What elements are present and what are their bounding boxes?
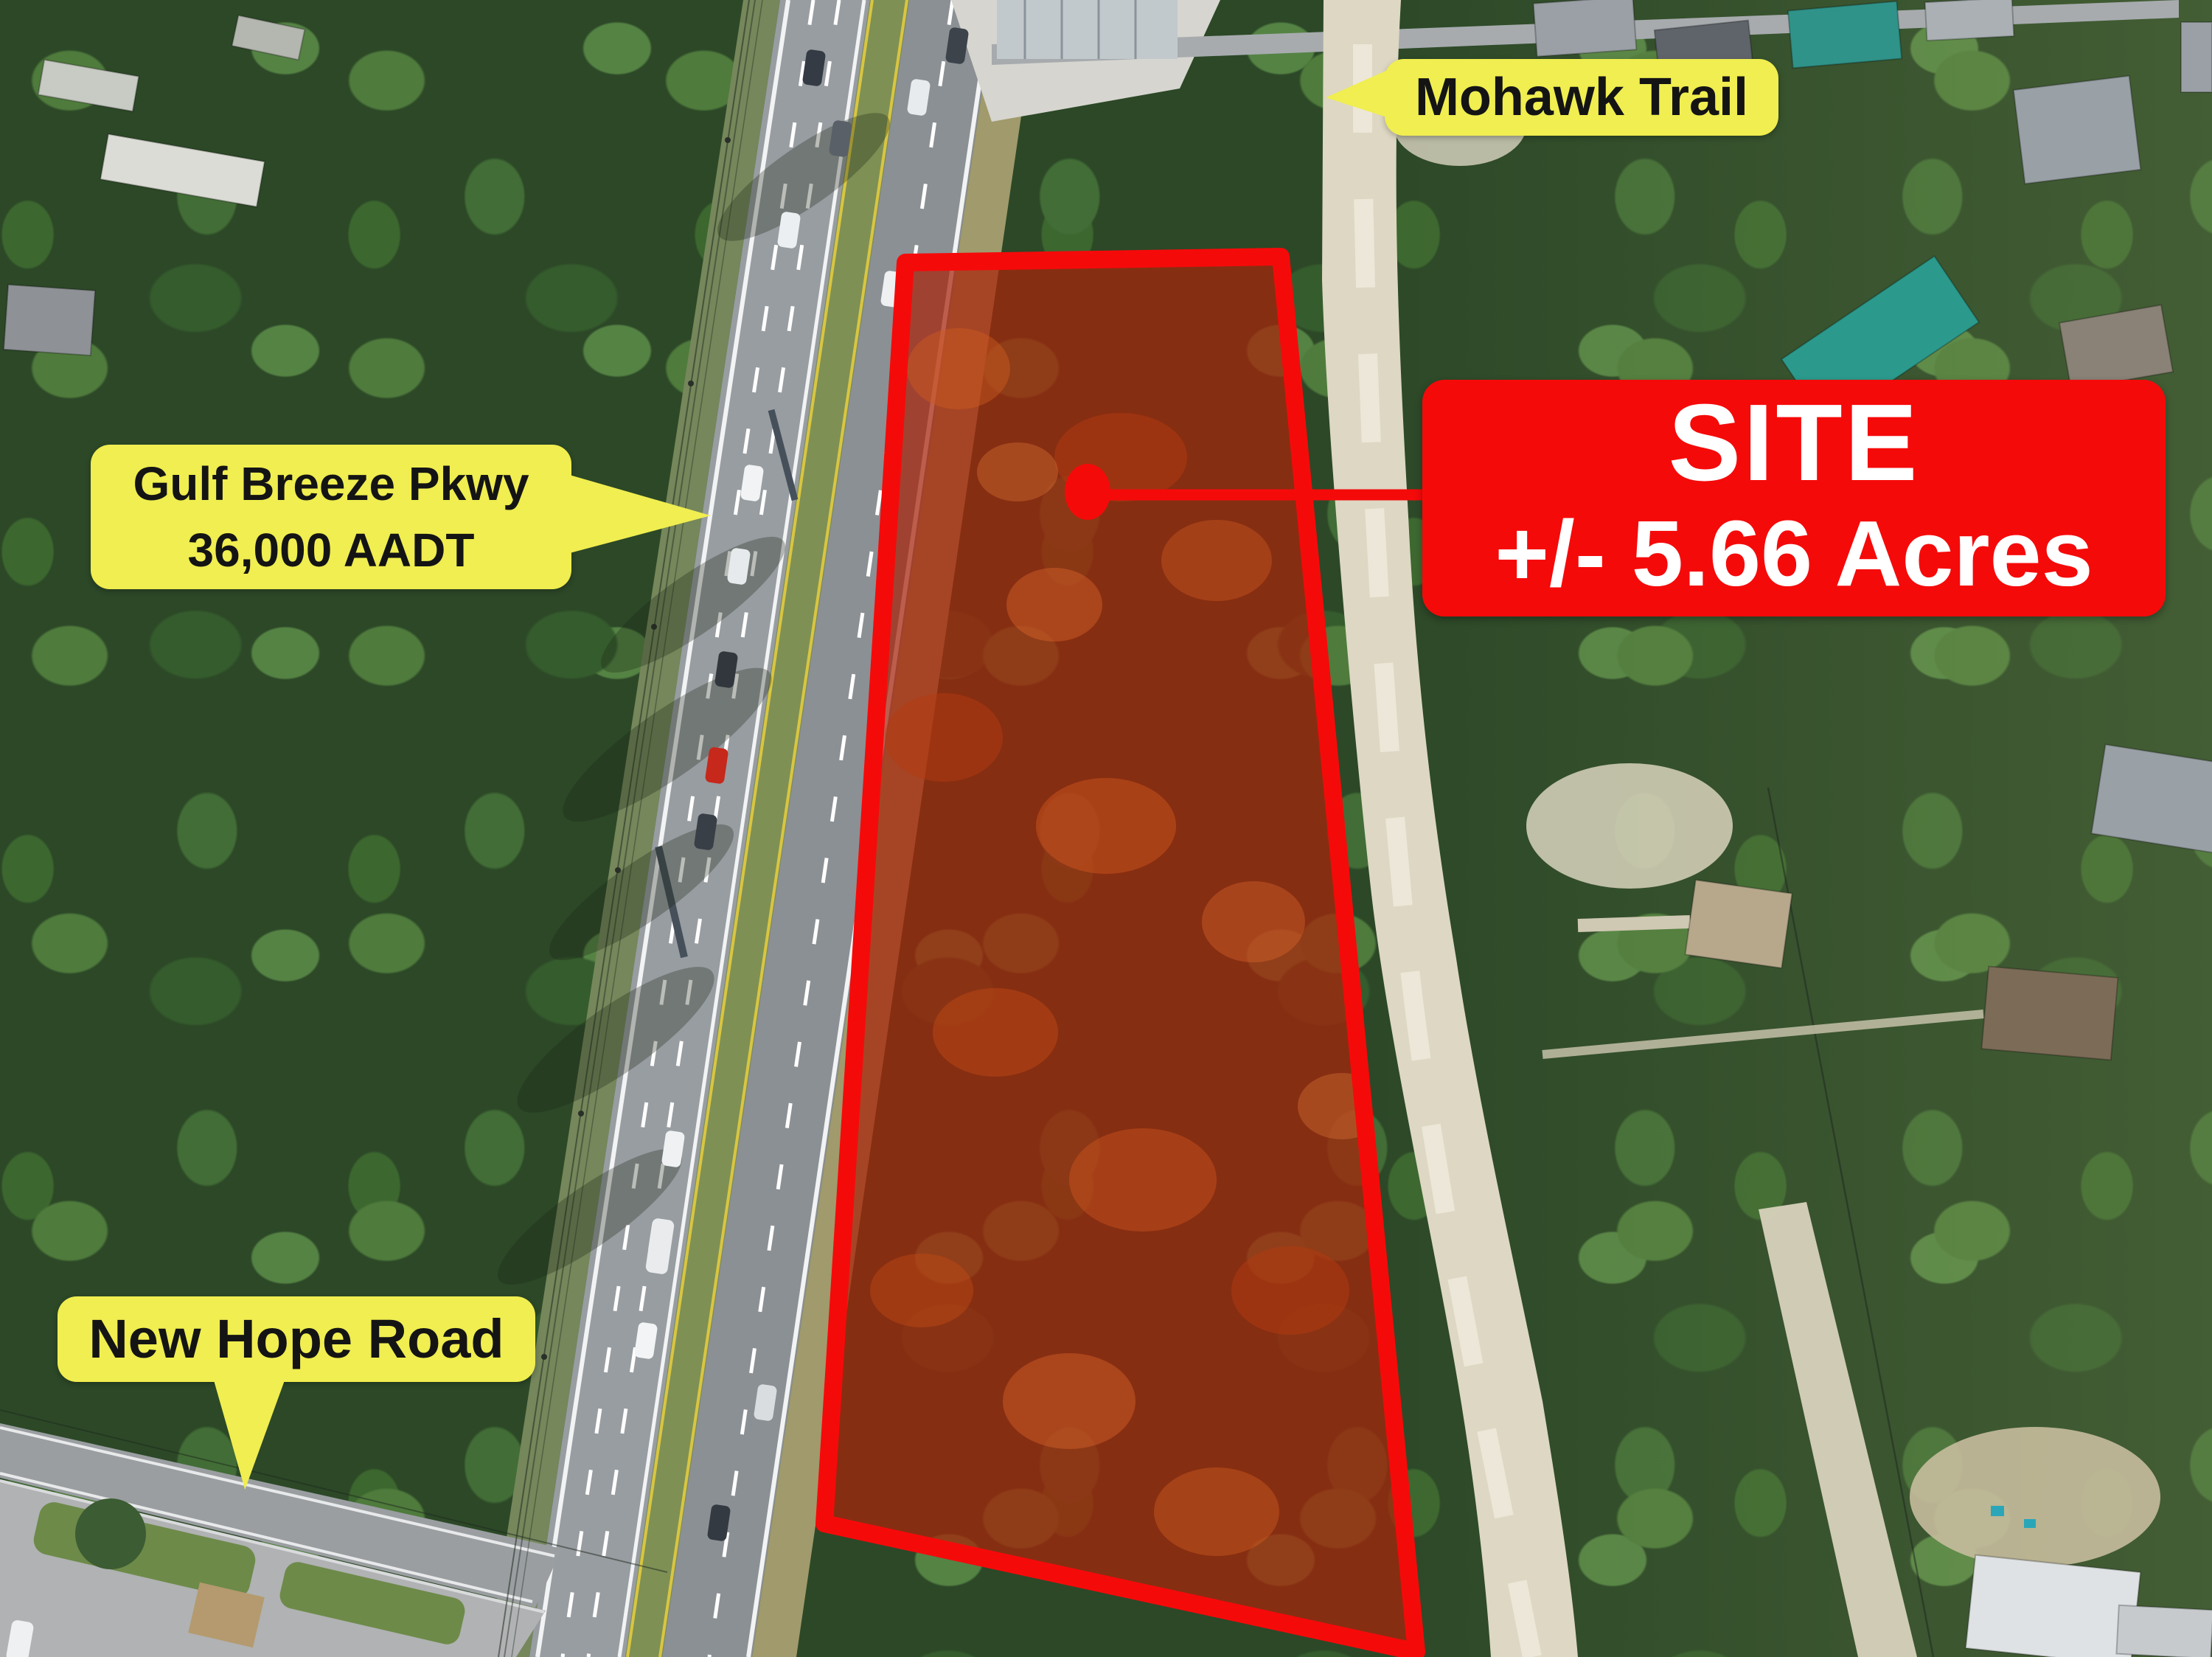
house-roof: [4, 285, 95, 355]
house-roof: [1981, 967, 2118, 1060]
house-roof: [2116, 1605, 2212, 1657]
callout-mohawk-trail: Mohawk Trail: [1385, 59, 1778, 136]
house-roof: [2181, 22, 2212, 92]
road-aadt-line2: 36,000 AADT: [91, 517, 571, 583]
house-roof: [100, 134, 264, 206]
mohawk-trail-sand-path: [1322, 0, 2160, 1657]
callout-new-hope-road: New Hope Road: [58, 1296, 535, 1382]
house-roof: [232, 15, 305, 60]
backyard-clearing: [1910, 1427, 2160, 1567]
house-roof: [1966, 1555, 2140, 1657]
house-roof: [2014, 76, 2140, 184]
aerial-site-map: Gulf Breeze Pkwy 36,000 AADT Mohawk Trai…: [0, 0, 2212, 1657]
sand-driveway: [1759, 1202, 1917, 1657]
road-label: New Hope Road: [58, 1296, 535, 1382]
house-roof: [1925, 0, 2014, 41]
site-area: +/- 5.66 Acres: [1495, 499, 2093, 609]
site-marker-dot: [1065, 464, 1110, 520]
road-label: Mohawk Trail: [1385, 59, 1778, 136]
road-label-line1: Gulf Breeze Pkwy: [91, 451, 571, 517]
house-roof: [1686, 880, 1792, 968]
site-info-box: SITE +/- 5.66 Acres: [1422, 380, 2166, 616]
house-roof: [1534, 0, 1637, 57]
house-roof: [2091, 745, 2212, 853]
house-roof: [38, 60, 139, 111]
site-title: SITE: [1669, 388, 1920, 499]
teal-roof-house: [1788, 1, 1902, 69]
aerial-scene: [0, 0, 2212, 1657]
house-roof: [2059, 305, 2173, 390]
callout-gulf-breeze-pkwy: Gulf Breeze Pkwy 36,000 AADT: [91, 445, 571, 589]
